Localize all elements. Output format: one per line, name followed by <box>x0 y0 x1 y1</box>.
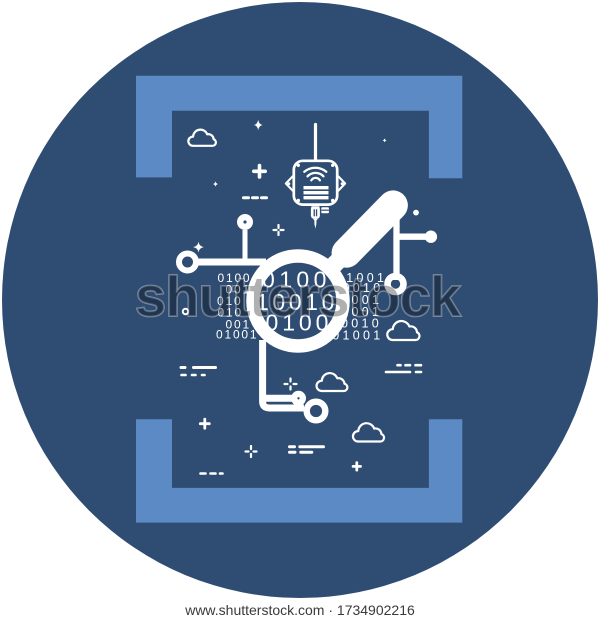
svg-text:01001: 01001 <box>216 328 258 342</box>
svg-text:www.shutterstock.com · 1734902: www.shutterstock.com · 1734902216 <box>184 602 415 618</box>
svg-text:shutterstock: shutterstock <box>135 265 461 329</box>
